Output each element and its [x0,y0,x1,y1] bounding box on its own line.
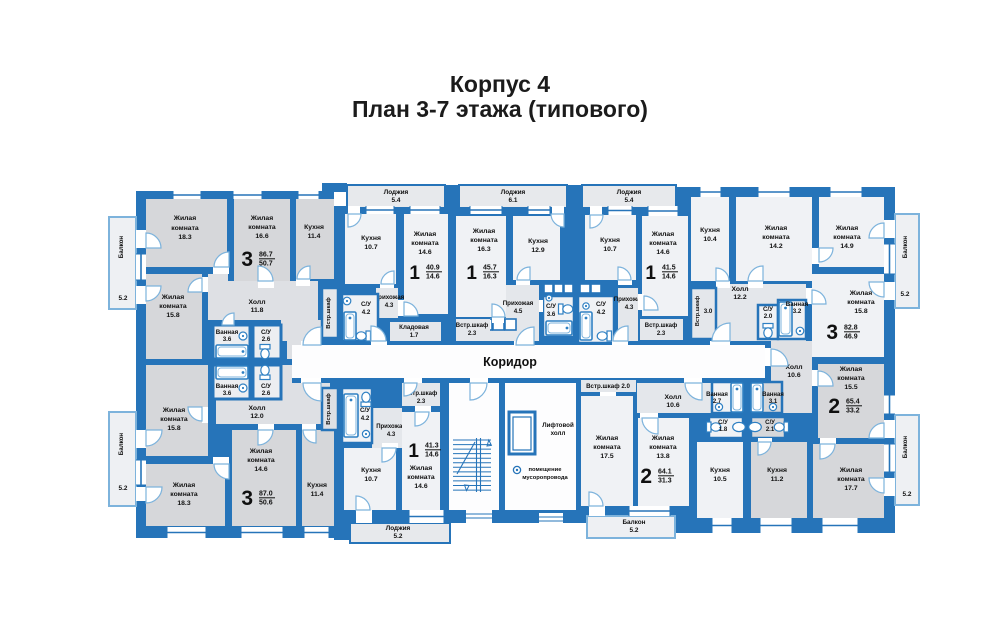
svg-text:17.5: 17.5 [600,453,613,460]
svg-text:Жилая: Жилая [161,294,184,301]
svg-text:2.3: 2.3 [657,331,666,337]
svg-text:Кухня: Кухня [528,238,548,245]
svg-text:2.3: 2.3 [417,399,426,405]
svg-text:5.4: 5.4 [392,197,401,204]
svg-text:Жилая: Жилая [839,366,862,373]
svg-text:Жилая: Жилая [472,228,495,235]
svg-text:Жилая: Жилая [173,215,196,222]
svg-text:С/У: С/У [360,407,370,414]
svg-text:С/У: С/У [361,301,371,308]
svg-text:Жилая: Жилая [162,407,185,414]
svg-text:46.9: 46.9 [844,334,858,341]
svg-text:комната: комната [837,375,865,382]
svg-text:3.0: 3.0 [704,308,713,315]
svg-text:С/У: С/У [546,303,556,310]
svg-text:Встр.шкаф: Встр.шкаф [325,393,332,424]
svg-text:4.3: 4.3 [387,432,396,438]
svg-text:Кухня: Кухня [710,467,730,474]
svg-text:Жилая: Жилая [835,225,858,232]
svg-text:комната: комната [407,474,435,481]
svg-text:5.2: 5.2 [394,533,403,540]
svg-text:18.3: 18.3 [178,234,191,241]
svg-text:Жилая: Жилая [839,467,862,474]
svg-text:Коридор: Коридор [483,355,537,369]
svg-text:11.4: 11.4 [308,233,321,240]
svg-text:Жилая: Жилая [849,290,872,297]
svg-text:14.6: 14.6 [656,249,669,256]
svg-text:11.4: 11.4 [311,491,324,498]
svg-text:4.2: 4.2 [361,415,370,422]
svg-text:12.2: 12.2 [733,294,746,301]
svg-text:Встр.шкаф: Встр.шкаф [694,296,701,326]
svg-text:14.2: 14.2 [769,243,782,250]
svg-text:3.6: 3.6 [223,336,232,343]
svg-text:холл: холл [551,430,566,437]
svg-text:10.7: 10.7 [364,244,377,251]
svg-text:3: 3 [241,248,253,271]
svg-text:3.6: 3.6 [547,311,556,318]
svg-text:Жилая: Жилая [172,482,195,489]
svg-text:3.1: 3.1 [769,399,778,405]
svg-text:2: 2 [640,465,652,488]
svg-text:С/У: С/У [763,306,773,313]
svg-text:комната: комната [837,476,865,483]
svg-text:10.7: 10.7 [603,246,616,253]
svg-text:14.6: 14.6 [418,249,431,256]
svg-text:40.9: 40.9 [426,265,440,272]
svg-text:10.5: 10.5 [713,476,726,483]
svg-text:1: 1 [466,263,477,284]
svg-text:1: 1 [408,441,419,462]
svg-text:Встр.шкаф: Встр.шкаф [325,297,332,328]
svg-text:3: 3 [241,487,253,510]
svg-text:5.2: 5.2 [119,295,128,302]
svg-text:3.2: 3.2 [793,308,802,315]
svg-text:14.6: 14.6 [425,452,439,459]
svg-text:мусоропровода: мусоропровода [522,475,568,481]
svg-text:15.8: 15.8 [854,308,867,315]
svg-text:С/У: С/У [261,329,271,336]
svg-text:33.2: 33.2 [846,408,860,415]
svg-text:С/У: С/У [261,383,271,390]
svg-text:комната: комната [248,224,276,231]
svg-text:17.7: 17.7 [844,485,857,492]
svg-text:16.3: 16.3 [477,246,490,253]
svg-text:Прихожая: Прихожая [503,300,534,307]
svg-text:комната: комната [247,457,275,464]
svg-text:11.2: 11.2 [771,476,784,483]
svg-text:комната: комната [649,444,677,451]
svg-text:Балкон: Балкон [118,433,125,456]
svg-text:2.1: 2.1 [766,427,775,433]
svg-text:14.6: 14.6 [426,274,440,281]
svg-text:4.2: 4.2 [362,309,371,316]
svg-text:Холл: Холл [248,299,265,306]
svg-text:Балкон: Балкон [118,236,125,259]
svg-text:Жилая: Жилая [250,215,273,222]
svg-text:10.6: 10.6 [787,372,800,379]
svg-text:Корпус 4: Корпус 4 [450,71,550,97]
svg-text:Встр.шкаф 2.0: Встр.шкаф 2.0 [586,383,630,390]
svg-text:Ванная: Ванная [786,301,809,308]
svg-text:Холл: Холл [731,286,748,293]
svg-text:Встр.шкаф: Встр.шкаф [645,322,678,329]
svg-text:комната: комната [649,240,677,247]
svg-text:комната: комната [593,444,621,451]
svg-text:16.3: 16.3 [483,274,497,281]
svg-text:13.8: 13.8 [656,453,669,460]
svg-text:45.7: 45.7 [483,265,497,272]
svg-text:65.4: 65.4 [846,399,860,406]
svg-text:4.3: 4.3 [385,302,394,309]
svg-text:Балкон: Балкон [622,519,645,526]
svg-text:15.5: 15.5 [844,384,857,391]
svg-text:12.9: 12.9 [531,247,544,254]
svg-text:14.6: 14.6 [414,483,427,490]
svg-text:Встр.шкаф: Встр.шкаф [456,322,489,329]
svg-text:1: 1 [645,263,656,284]
svg-text:Жилая: Жилая [409,465,432,472]
svg-text:Балкон: Балкон [902,436,909,459]
svg-text:10.7: 10.7 [364,476,377,483]
svg-text:Кухня: Кухня [361,467,381,474]
svg-text:82.8: 82.8 [844,325,858,332]
svg-text:Лоджия: Лоджия [501,189,526,196]
svg-text:Кухня: Кухня [307,482,327,489]
svg-text:комната: комната [847,299,875,306]
svg-text:комната: комната [171,225,199,232]
svg-text:64.1: 64.1 [658,469,672,476]
svg-text:18.3: 18.3 [177,500,190,507]
svg-text:14.6: 14.6 [662,274,676,281]
svg-text:Холл: Холл [248,405,265,412]
svg-text:3: 3 [826,321,838,344]
svg-text:Ванная: Ванная [216,383,239,390]
svg-text:Ванная: Ванная [216,329,239,336]
svg-text:2.7: 2.7 [713,399,722,405]
svg-text:4.5: 4.5 [514,308,523,315]
svg-text:комната: комната [160,416,188,423]
svg-text:Кухня: Кухня [600,237,620,244]
svg-text:Кухня: Кухня [304,224,324,231]
svg-text:5.2: 5.2 [119,485,128,492]
svg-text:Лоджия: Лоджия [617,189,642,196]
svg-text:4.2: 4.2 [597,309,606,316]
svg-text:86.7: 86.7 [259,252,273,259]
svg-text:Лоджия: Лоджия [386,525,411,532]
svg-text:Жилая: Жилая [651,435,674,442]
svg-text:50.6: 50.6 [259,500,273,507]
svg-text:41.5: 41.5 [662,265,676,272]
svg-text:5.2: 5.2 [901,291,910,298]
svg-text:11.8: 11.8 [251,307,264,314]
svg-text:Жилая: Жилая [651,231,674,238]
svg-text:5.2: 5.2 [630,527,639,534]
svg-text:2: 2 [828,395,840,418]
svg-text:План 3-7 этажа (типового): План 3-7 этажа (типового) [352,96,648,122]
svg-text:10.6: 10.6 [666,402,679,409]
svg-text:1.8: 1.8 [719,427,728,433]
svg-text:Кухня: Кухня [700,227,720,234]
svg-text:Жилая: Жилая [413,231,436,238]
svg-text:Холл: Холл [664,394,681,401]
svg-text:Жилая: Жилая [595,435,618,442]
svg-text:15.8: 15.8 [167,425,180,432]
svg-text:комната: комната [762,234,790,241]
svg-text:2.6: 2.6 [262,390,271,397]
svg-text:Кладовая: Кладовая [399,324,429,331]
svg-text:4.3: 4.3 [625,304,634,311]
svg-text:Лифтовой: Лифтовой [542,422,574,429]
svg-text:С/У: С/У [718,420,728,426]
svg-text:1: 1 [409,263,420,284]
svg-text:Лоджия: Лоджия [384,189,409,196]
svg-text:14.6: 14.6 [254,466,267,473]
svg-text:помещение: помещение [529,467,563,473]
svg-text:Жилая: Жилая [249,448,272,455]
svg-text:комната: комната [411,240,439,247]
svg-text:87.0: 87.0 [259,491,273,498]
svg-text:2.6: 2.6 [262,336,271,343]
svg-text:16.6: 16.6 [255,233,268,240]
svg-text:комната: комната [833,234,861,241]
svg-text:С/У: С/У [765,420,775,426]
svg-text:41.3: 41.3 [425,443,439,450]
svg-text:3.6: 3.6 [223,390,232,397]
svg-text:комната: комната [159,303,187,310]
svg-text:6.1: 6.1 [509,197,518,204]
svg-text:15.8: 15.8 [166,312,179,319]
svg-text:Жилая: Жилая [764,225,787,232]
svg-text:Ванная: Ванная [762,392,784,398]
svg-text:1.7: 1.7 [410,332,419,339]
svg-text:10.4: 10.4 [703,236,716,243]
svg-text:12.0: 12.0 [250,413,263,420]
svg-text:комната: комната [470,237,498,244]
svg-text:2.3: 2.3 [468,331,477,337]
svg-text:5.2: 5.2 [903,491,912,498]
svg-text:31.3: 31.3 [658,478,672,485]
svg-text:Ванная: Ванная [706,392,728,398]
svg-text:комната: комната [170,491,198,498]
svg-text:2.0: 2.0 [764,313,773,320]
svg-text:14.9: 14.9 [840,243,853,250]
svg-text:С/У: С/У [596,301,606,308]
svg-text:Кухня: Кухня [361,235,381,242]
svg-text:Кухня: Кухня [767,467,787,474]
svg-text:Балкон: Балкон [902,236,909,259]
svg-text:5.4: 5.4 [625,197,634,204]
svg-text:Прихожая: Прихожая [376,424,406,430]
